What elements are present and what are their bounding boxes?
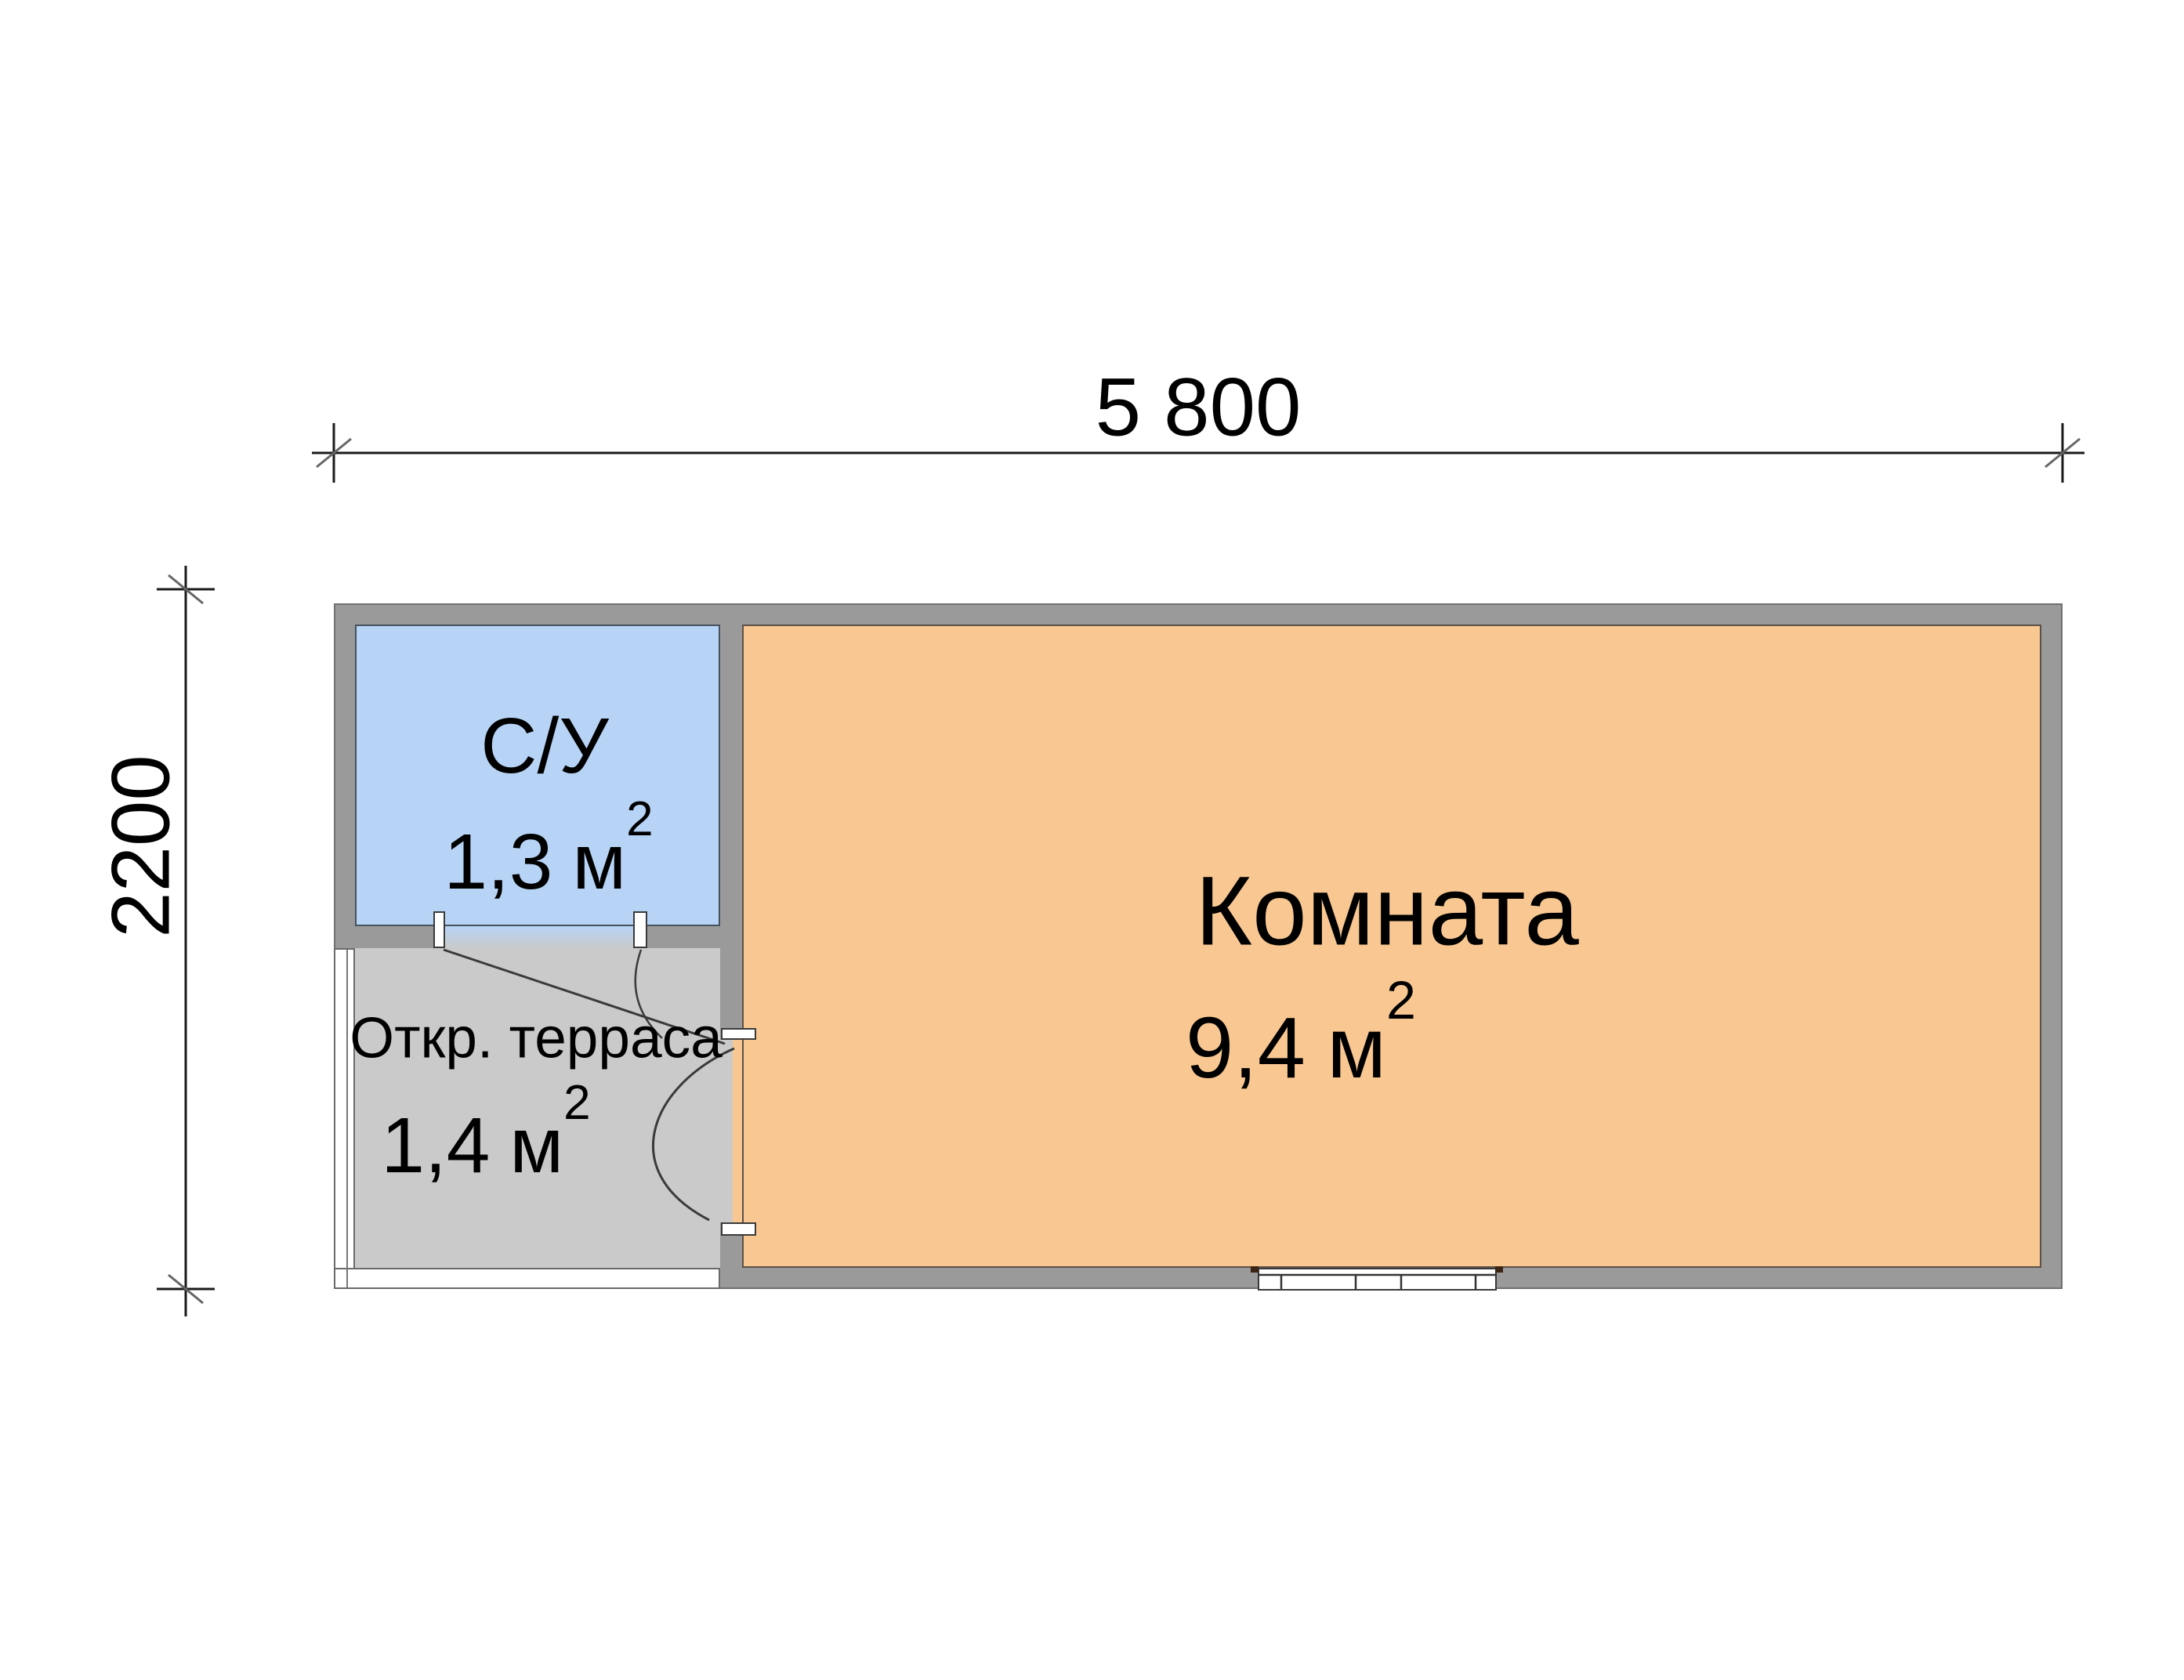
window-end-mark-right (1495, 1266, 1503, 1273)
main-door-jamb-top (721, 1028, 756, 1040)
bathroom-name: С/У (480, 707, 609, 785)
terrace-name: Откр. терраса (350, 1010, 722, 1067)
main-door-jamb-bottom (721, 1222, 756, 1236)
main-room-doorway-fill (733, 1040, 742, 1222)
dimension-left-label: 2200 (100, 755, 183, 938)
main-room-name: Комната (1195, 863, 1578, 961)
bathroom-area: 1,3м2 (444, 823, 653, 901)
window (1258, 1268, 1497, 1291)
floor-plan: 5 800 2200 С/У 1,3м2 Откр. терраса 1,4м2… (0, 0, 2184, 1680)
terrace-doorway-fill (720, 1040, 733, 1222)
terrace-area: 1,4м2 (381, 1106, 590, 1185)
bathroom-door-jamb-right (633, 911, 647, 948)
bathroom-door-opening (445, 926, 633, 948)
window-end-mark-left (1251, 1266, 1259, 1273)
main-room-area: 9,4м2 (1186, 1005, 1416, 1092)
terrace-open-edge-left (334, 948, 355, 1289)
dimension-left-linework (157, 566, 215, 1316)
bathroom-door-jamb-left (433, 911, 445, 948)
terrace-open-edge-bottom (334, 1268, 720, 1289)
dimension-top-label: 5 800 (1096, 367, 1302, 449)
